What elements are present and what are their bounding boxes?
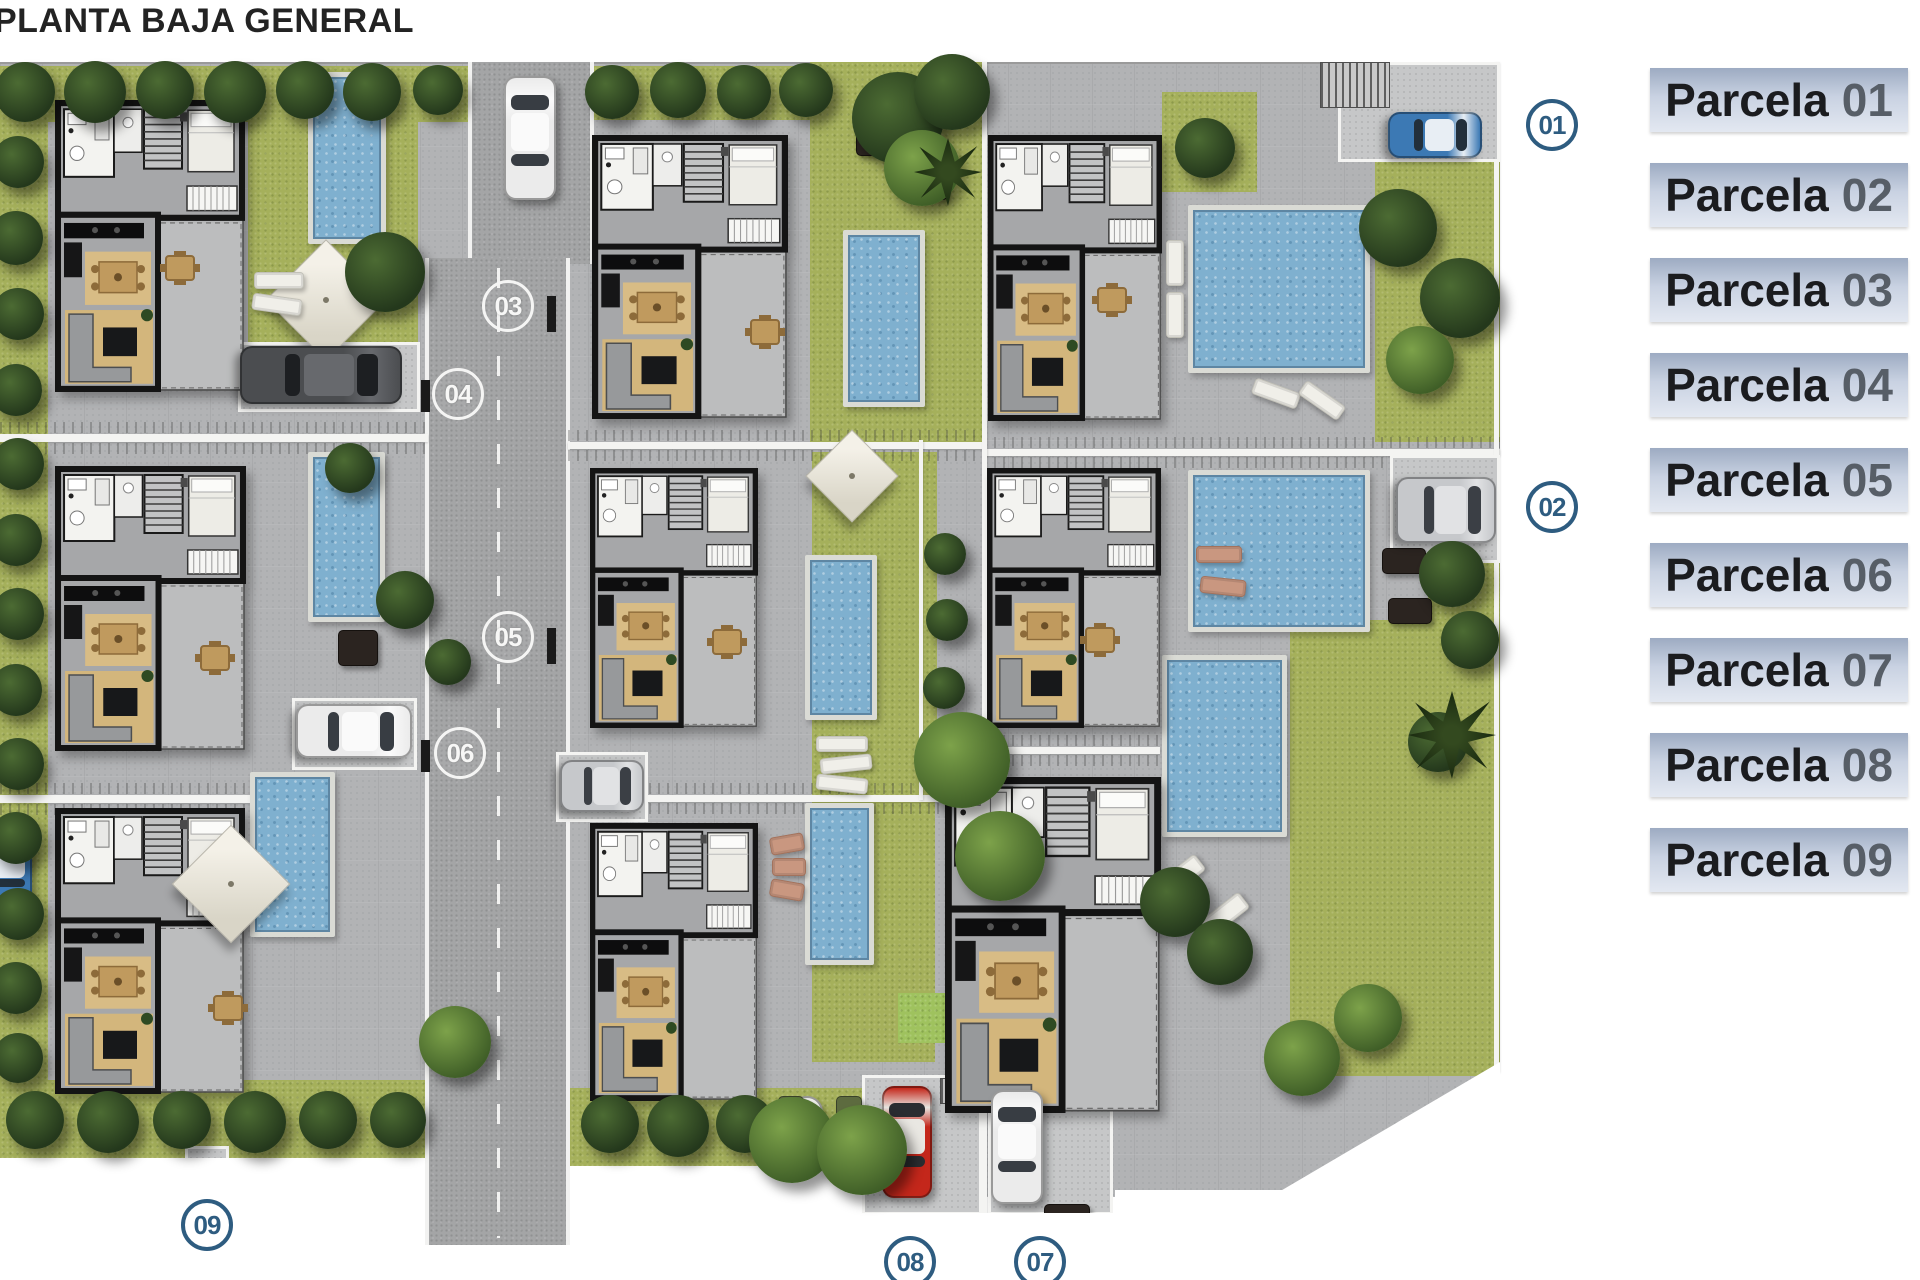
house-plan — [590, 468, 758, 728]
car-roof — [304, 354, 355, 396]
patio-table — [712, 629, 742, 655]
car-roof — [1425, 119, 1454, 152]
tree — [343, 63, 401, 121]
plan-marker-02: 02 — [1526, 481, 1578, 533]
legend-item-parcela-02: Parcela02 — [1650, 163, 1908, 227]
sun-lounger — [772, 858, 806, 876]
tree — [585, 65, 639, 119]
gate-mark — [421, 380, 430, 412]
tree — [717, 65, 771, 119]
car-white — [296, 704, 412, 758]
legend-label: Parcela — [1665, 738, 1829, 792]
legend-label: Parcela — [1665, 833, 1829, 887]
sun-lounger — [1166, 292, 1184, 338]
pool — [1162, 655, 1287, 837]
tree — [581, 1095, 639, 1153]
divider-ticks — [985, 437, 1500, 448]
tree — [1187, 919, 1253, 985]
divider-ticks — [0, 422, 428, 433]
tree — [1441, 611, 1499, 669]
sun-lounger — [816, 736, 868, 752]
tree — [1264, 1020, 1340, 1096]
tree — [325, 443, 375, 493]
legend-number: 03 — [1842, 263, 1893, 317]
planter — [1388, 598, 1432, 624]
tree — [926, 599, 968, 641]
boundary-wall — [1494, 62, 1499, 1072]
car-windshield — [357, 354, 378, 396]
grass-area — [898, 993, 952, 1043]
plan-marker-01: 01 — [1526, 99, 1578, 151]
legend-number: 04 — [1842, 358, 1893, 412]
tree — [1175, 118, 1235, 178]
tree — [276, 61, 334, 119]
legend-label: Parcela — [1665, 73, 1829, 127]
house-plan — [55, 466, 246, 751]
legend-label: Parcela — [1665, 453, 1829, 507]
tree — [914, 712, 1010, 808]
plan-marker-09: 09 — [181, 1199, 233, 1251]
legend-label: Parcela — [1665, 358, 1829, 412]
tree — [650, 62, 706, 118]
car-roof — [593, 767, 619, 804]
car-roof — [1435, 486, 1466, 534]
plan-marker-06: 06 — [434, 727, 486, 779]
parcel-divider — [0, 434, 428, 442]
road-centerline — [497, 268, 500, 1238]
tree — [647, 1095, 709, 1157]
car-roof — [342, 712, 378, 751]
plan-marker-03: 03 — [482, 280, 534, 332]
parcel-divider — [0, 795, 250, 803]
car-rear-window — [584, 767, 592, 804]
legend-label: Parcela — [1665, 548, 1829, 602]
stairs-hatch — [1320, 62, 1390, 108]
legend-item-parcela-08: Parcela08 — [1650, 733, 1908, 797]
tree — [413, 65, 463, 115]
tree — [425, 639, 471, 685]
tree — [136, 61, 194, 119]
car-rear-window — [998, 1161, 1035, 1172]
divider-ticks — [985, 735, 1160, 746]
car-dark — [240, 346, 402, 404]
legend-number: 05 — [1842, 453, 1893, 507]
car-blue — [1388, 112, 1482, 158]
legend-number: 01 — [1842, 73, 1893, 127]
car-rear-window — [1414, 119, 1423, 152]
car-roof — [998, 1124, 1035, 1159]
tree — [224, 1091, 286, 1153]
car-rear-window — [285, 354, 301, 396]
tree — [955, 811, 1045, 901]
gate-mark — [547, 628, 556, 664]
pool — [805, 803, 874, 965]
tree — [153, 1091, 211, 1149]
plan-edge-mask — [1115, 1190, 1500, 1280]
car-windshield — [380, 712, 395, 751]
pool — [805, 555, 877, 720]
tree — [299, 1091, 357, 1149]
parcel-divider — [985, 747, 1160, 754]
legend-number: 08 — [1842, 738, 1893, 792]
sun-lounger — [1196, 546, 1242, 563]
gate-mark — [421, 740, 430, 772]
legend-number: 06 — [1842, 548, 1893, 602]
tree — [1359, 189, 1437, 267]
patio-table — [1097, 287, 1127, 313]
house-plan — [592, 135, 788, 419]
car-roof — [511, 113, 548, 151]
tree — [914, 54, 990, 130]
house-plan — [55, 100, 245, 392]
patio-table — [1085, 627, 1115, 653]
planter — [338, 630, 378, 666]
tree — [924, 533, 966, 575]
car-silver — [560, 760, 644, 812]
plan-edge-mask — [425, 1245, 570, 1280]
legend-item-parcela-03: Parcela03 — [1650, 258, 1908, 322]
tree — [77, 1091, 139, 1153]
tree — [1419, 541, 1485, 607]
sun-lounger — [254, 272, 304, 289]
legend-label: Parcela — [1665, 643, 1829, 697]
plan-marker-08: 08 — [884, 1236, 936, 1280]
legend-label: Parcela — [1665, 168, 1829, 222]
car-rear-window — [0, 879, 25, 886]
gate-mark — [547, 296, 556, 332]
pool — [250, 772, 335, 937]
house-plan — [590, 823, 758, 1101]
plan-marker-07: 07 — [1014, 1236, 1066, 1280]
car-windshield — [889, 1103, 925, 1117]
sun-lounger — [1166, 240, 1184, 286]
car-silver — [1396, 477, 1496, 543]
legend-item-parcela-06: Parcela06 — [1650, 543, 1908, 607]
legend-item-parcela-05: Parcela05 — [1650, 448, 1908, 512]
pool — [1188, 205, 1370, 373]
tree — [1420, 258, 1500, 338]
legend-item-parcela-01: Parcela01 — [1650, 68, 1908, 132]
tree — [370, 1092, 426, 1148]
legend-item-parcela-09: Parcela09 — [1650, 828, 1908, 892]
patio-table — [750, 319, 780, 345]
patio-table — [213, 995, 243, 1021]
tree — [779, 63, 833, 117]
tree — [345, 232, 425, 312]
plan-edge-mask — [570, 1166, 862, 1280]
car-windshield — [1456, 119, 1468, 152]
tree — [376, 571, 434, 629]
car-windshield — [998, 1107, 1035, 1121]
tree — [1386, 326, 1454, 394]
tree — [923, 667, 965, 709]
car-windshield — [620, 767, 630, 804]
divider-ticks — [985, 755, 1160, 766]
tree — [64, 61, 126, 123]
legend-number: 02 — [1842, 168, 1893, 222]
car-rear-window — [328, 712, 339, 751]
car-rear-window — [1424, 486, 1434, 534]
car-white — [504, 76, 556, 200]
legend-number: 07 — [1842, 643, 1893, 697]
page-title: PLANTA BAJA GENERAL — [0, 2, 414, 41]
legend-label: Parcela — [1665, 263, 1829, 317]
tree — [204, 61, 266, 123]
patio-table — [165, 255, 195, 281]
legend-item-parcela-07: Parcela07 — [1650, 638, 1908, 702]
divider-ticks — [0, 783, 250, 794]
tree — [1334, 984, 1402, 1052]
patio-table — [200, 645, 230, 671]
tree — [817, 1105, 907, 1195]
car-windshield — [1468, 486, 1480, 534]
parcel-legend: Parcela01 Parcela02 Parcela03 Parcela04 … — [1650, 68, 1908, 923]
house-plan — [988, 135, 1162, 421]
car-white — [991, 1090, 1043, 1204]
house-plan — [987, 468, 1161, 728]
legend-number: 09 — [1842, 833, 1893, 887]
site-plan — [0, 0, 1920, 1280]
plan-marker-04: 04 — [432, 368, 484, 420]
plan-marker-05: 05 — [482, 611, 534, 663]
tree — [6, 1091, 64, 1149]
pool — [843, 230, 925, 407]
tree — [419, 1006, 491, 1078]
car-windshield — [511, 95, 548, 111]
car-rear-window — [511, 154, 548, 166]
legend-item-parcela-04: Parcela04 — [1650, 353, 1908, 417]
